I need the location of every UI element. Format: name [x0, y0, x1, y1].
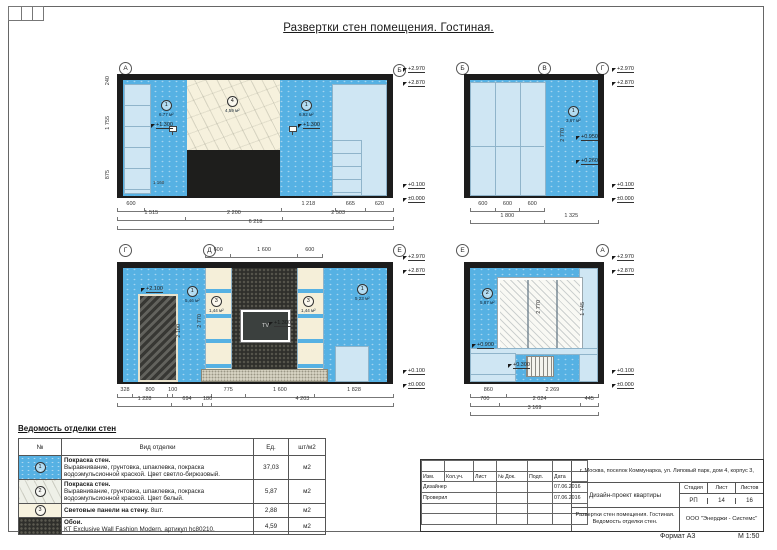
wall-section [117, 262, 123, 384]
dimension-row: 3 169 [470, 412, 599, 416]
wall-section [387, 74, 393, 198]
title-block: Изм. Кол.уч. Лист № Док. Подп. Дата Диза… [420, 459, 764, 532]
finish-qty: 37,03 [254, 456, 289, 480]
wall-section [387, 262, 393, 384]
finish-qty: 4,59 [254, 518, 289, 535]
finish-unit: м2 [289, 504, 326, 518]
dimension-row: 1 228 694 180 4 203 [117, 403, 394, 407]
signature-role: Проверил [422, 493, 497, 504]
finish-qty: 2,88 [254, 504, 289, 518]
format-label: Формат А3 [660, 533, 695, 540]
elevation-mark: +1.300 [298, 122, 320, 128]
dim-segment: 3 169 [470, 412, 598, 415]
elevation-mark: +2.970 [403, 254, 425, 260]
radiator [526, 356, 554, 377]
swatch-paint-turquoise: 1 [19, 456, 62, 480]
table-header-row: № Вид отделки Ед. шт/м2 [19, 439, 326, 456]
dim-segment: 1 325 [544, 220, 598, 223]
finish-name: Покраска стен. [64, 481, 251, 488]
table-row: Обои.КТ Exclusive Wall Fashion Modern. а… [19, 518, 326, 535]
dim-segment: 6 218 [117, 226, 393, 229]
wall-elevation: +2.100 2 100 2 770 1 5,46 м² 3 1,44 м² 3… [117, 262, 393, 384]
shelf-unit [124, 84, 151, 194]
divider [21, 7, 22, 20]
corner-stamp [8, 6, 44, 21]
finish-zone-label: 1 6,92 м² [299, 100, 314, 117]
page-title: Развертки стен помещения. Гостиная. [0, 22, 777, 34]
finish-name: Покраска стен. [64, 457, 251, 464]
project-name: Дизайн-проект квартиры [571, 483, 679, 508]
dimension-row: 1 800 1 325 [470, 220, 599, 224]
dim-segment: 180 [202, 403, 211, 406]
elevation-mark: +2.970 [612, 66, 634, 72]
dimension-row: 600 1 600 600 [205, 254, 323, 258]
elevation-mark: +0.300 [508, 362, 530, 368]
finish-zone-label: 4 4,59 м² [225, 96, 240, 113]
project-address: г. Москва, поселок Коммунарка, ул. Липов… [571, 460, 763, 483]
swatch-light-panels: 3 [19, 504, 62, 518]
dim-segment: 600 [205, 254, 230, 257]
elevation-mark: ±0.000 [403, 196, 425, 202]
table-row: 2 Покраска стен.Выравнивание, грунтовка,… [19, 480, 326, 504]
door [138, 294, 178, 382]
wardrobe-unit [470, 82, 546, 196]
wardrobe-shelf-line [470, 146, 544, 147]
finish-zone-label: 2 5,87 м² [480, 288, 495, 305]
stage-value: РП [680, 498, 708, 504]
finish-zone-label: 1 5,46 м² [185, 286, 200, 303]
sheet-name: Развертки стен помещения. Гостиная. Ведо… [571, 507, 679, 531]
finish-zone-label: 1 3,67 м² [566, 106, 581, 123]
finish-unit: м2 [289, 518, 326, 535]
inner-dimension: 1 160 [153, 180, 164, 185]
finish-desc: 8шт. [151, 507, 164, 514]
swatch-paint-white: 2 [19, 480, 62, 504]
wall-section [598, 74, 604, 198]
elevation-mark: +2.970 [612, 254, 634, 260]
elevation-e-a: Е А 2 5,87 м² 2 770 1 745 +0.900 +0.300 … [450, 242, 650, 424]
signature-role: Дизайнер [422, 482, 497, 493]
elevation-mark: +2.870 [403, 268, 425, 274]
sheets-header: Листов [736, 483, 763, 493]
wall-elevation: 2 5,87 м² 2 770 1 745 +0.900 +0.300 [464, 262, 604, 384]
elevation-mark: +2.870 [612, 80, 634, 86]
sheets-total: 16 [736, 498, 763, 504]
elevation-mark: +0.950 [576, 134, 598, 140]
signature-row: Дизайнер 07.06.2016 [422, 482, 588, 493]
dim-segment: 1 228 [117, 403, 171, 406]
elevation-mark: +0.100 [612, 368, 634, 374]
finish-qty: 5,87 [254, 480, 289, 504]
swatch-wallpaper [19, 518, 62, 535]
finish-name: Световые панели на стену. [64, 507, 149, 514]
dim-segment: 1 600 [230, 254, 296, 257]
finish-zone-label: 1 5,23 м² [355, 284, 370, 301]
finish-schedule-title: Ведомость отделки стен [18, 424, 326, 433]
wall-elevation: 1 6,77 м² 4 4,59 м² 1 6,92 м² +1.300 +1.… [117, 74, 393, 198]
window [498, 278, 582, 350]
elevation-mark: +2.870 [612, 268, 634, 274]
elevation-mark: +2.970 [403, 66, 425, 72]
table-row: 1 Покраска стен.Выравнивание, грунтовка,… [19, 456, 326, 480]
tv-console [187, 150, 280, 196]
tv-label: TV [262, 323, 269, 329]
dimension-row: 600 600 600 [470, 208, 545, 212]
dim-segment: 1 800 [470, 220, 544, 223]
elevation-b-v-g: Б В Г 1 3,67 м² 2 770 +2.970 +2.870 +0.9… [450, 58, 650, 238]
axis-marker: А [596, 244, 609, 257]
dim-segment: 600 [470, 208, 495, 211]
scale-label: М 1:50 [738, 533, 759, 540]
company-name: ООО "Энерджи - Системс" [679, 507, 763, 531]
dimension-row: 6 218 [117, 226, 394, 230]
vertical-dimension: 2 770 [536, 300, 542, 314]
finish-schedule-table: № Вид отделки Ед. шт/м2 1 Покраска стен.… [18, 438, 326, 535]
elevation-mark: +0.100 [403, 182, 425, 188]
col-header-qty: шт/м2 [289, 439, 326, 456]
dim-segment: 600 [519, 208, 544, 211]
axis-marker: Е [456, 244, 469, 257]
finish-desc: Выравнивание, грунтовка, шпаклевка, покр… [64, 464, 220, 478]
finish-zone-label: 3 1,44 м² [209, 296, 224, 313]
finish-zone-label: 3 1,44 м² [301, 296, 316, 313]
title-block-right: г. Москва, поселок Коммунарка, ул. Липов… [571, 460, 763, 531]
col-header-num: № [19, 439, 62, 456]
elevation-mark: ±0.000 [612, 382, 634, 388]
vertical-dimension: 1 745 [580, 302, 586, 316]
tv-bench [201, 369, 328, 382]
drawing-sheet: Развертки стен помещения. Гостиная. А Б … [0, 0, 777, 550]
vertical-dimension: 1 755 [105, 116, 111, 130]
finish-desc: Выравнивание, грунтовка, шпаклевка, покр… [64, 488, 204, 502]
sheet-header: Лист [708, 483, 736, 493]
vertical-dimension: 2 770 [560, 128, 566, 142]
finish-name: Обои. [64, 519, 251, 526]
signature-row: Проверил 07.06.2016 [422, 493, 588, 504]
axis-marker: Г [119, 244, 132, 257]
title-block-signatures: Изм. Кол.уч. Лист № Док. Подп. Дата Диза… [421, 460, 572, 531]
elevation-mark: +0.900 [472, 342, 494, 348]
divider [32, 7, 33, 20]
sheet-number: 14 [708, 498, 736, 504]
vertical-dimension: 2 100 [176, 324, 182, 338]
elevation-mark: +1.300 [269, 320, 291, 326]
elevation-mark: +0.100 [612, 182, 634, 188]
elevation-mark: +1.300 [151, 122, 173, 128]
vertical-dimension: 2 770 [197, 314, 203, 328]
finish-zone-label: 1 6,77 м² [159, 100, 174, 117]
light-panels-column [297, 268, 324, 371]
stage-table: Стадия Лист Листов РП 14 16 [679, 483, 763, 508]
cabinet-unit [335, 346, 369, 382]
finish-schedule: Ведомость отделки стен № Вид отделки Ед.… [18, 424, 326, 535]
wall-section [598, 262, 604, 384]
elevation-mark: +0.100 [403, 368, 425, 374]
col-header-unit: Ед. [254, 439, 289, 456]
table-row: 3 Световые панели на стену. 8шт. 2,88 м2 [19, 504, 326, 518]
vertical-dimension: 240 [105, 76, 111, 85]
finish-unit: м2 [289, 456, 326, 480]
elevation-mark: +0.260 [576, 158, 598, 164]
stage-header: Стадия [680, 483, 708, 493]
elevation-mark: +2.870 [403, 80, 425, 86]
vertical-dimension: 875 [105, 170, 111, 179]
dim-segment: 694 [171, 403, 202, 406]
dim-segment: 4 203 [211, 403, 393, 406]
col-header-type: Вид отделки [62, 439, 254, 456]
signature-header-row: Изм. Кол.уч. Лист № Док. Подп. Дата [422, 471, 588, 482]
drawer-unit [332, 140, 362, 196]
elevation-g-d-e: Г Д Е 600 1 600 600 +2.100 2 100 2 770 1… [95, 242, 440, 424]
ceiling-band [464, 74, 604, 80]
finish-desc: КТ Exclusive Wall Fashion Modern. артику… [64, 526, 215, 533]
wall-section [117, 74, 123, 198]
elevation-mark: ±0.000 [612, 196, 634, 202]
finish-unit: м2 [289, 480, 326, 504]
elevation-a-b: А Б 1 6,77 м² 4 4,59 м² 1 6,92 м² [95, 58, 440, 238]
light-panels-column [205, 268, 232, 371]
elevation-mark: ±0.000 [403, 382, 425, 388]
dim-segment: 600 [495, 208, 520, 211]
wall-lamp-icon [289, 126, 297, 135]
elevation-mark: +2.100 [141, 286, 163, 292]
dim-segment: 600 [297, 254, 322, 257]
